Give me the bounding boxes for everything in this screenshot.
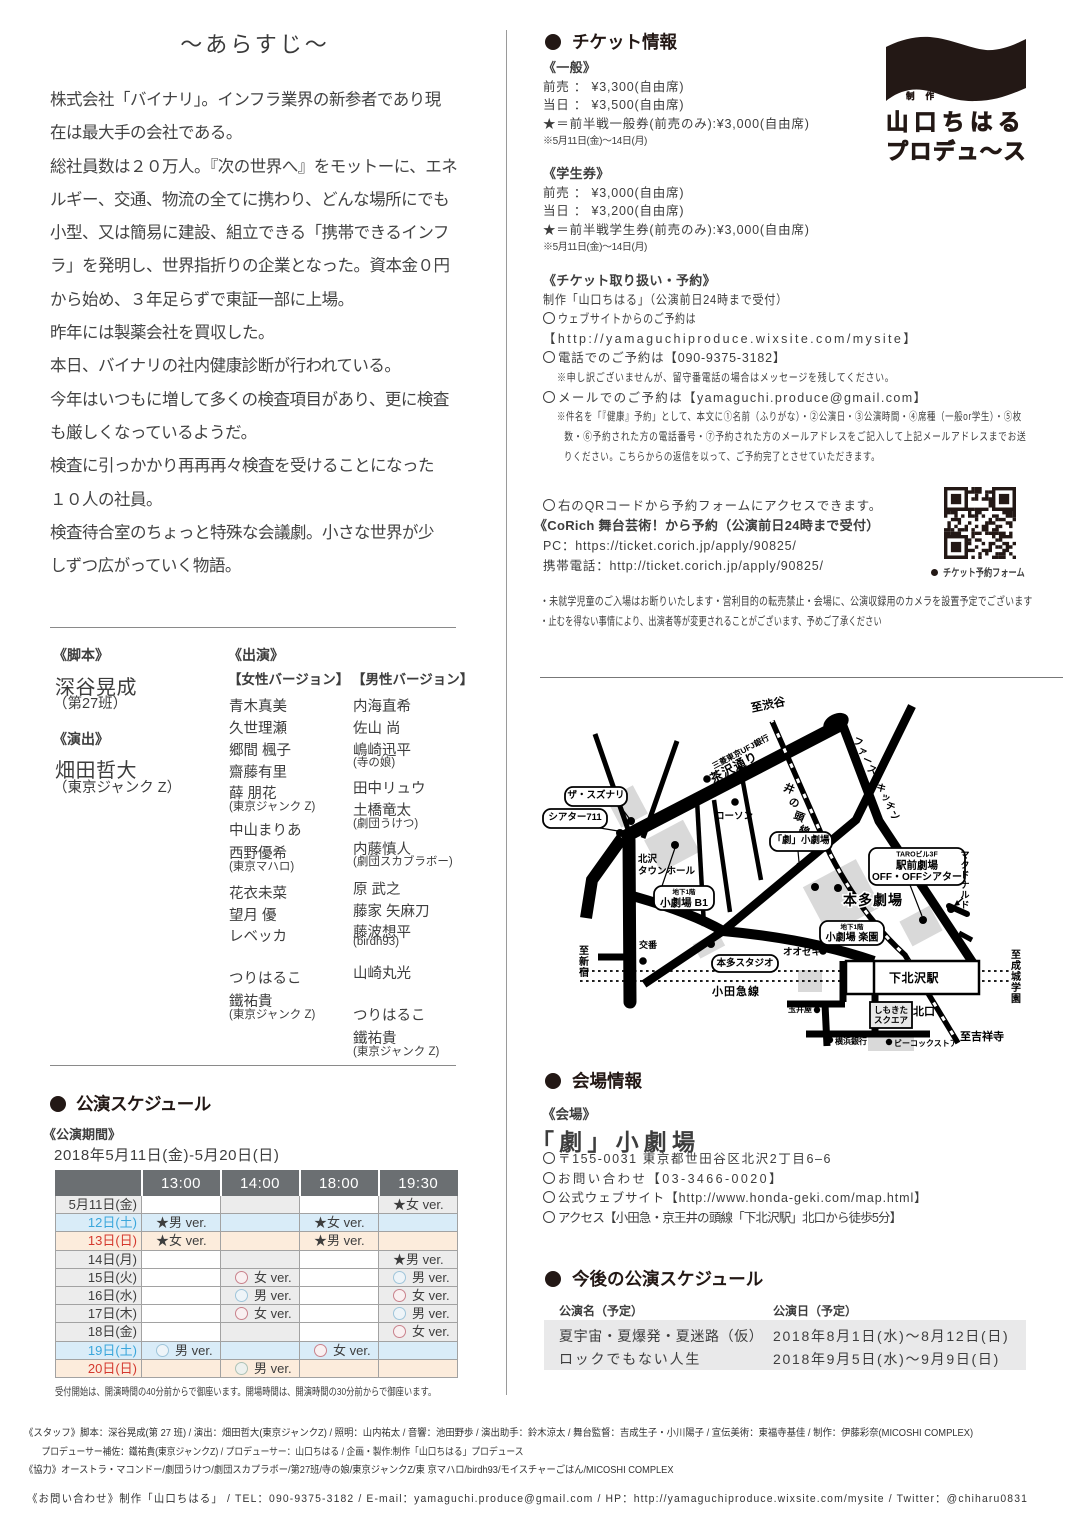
svg-text:宿: 宿 [579, 966, 589, 979]
svg-text:横浜銀行: 横浜銀行 [835, 1036, 867, 1046]
svg-text:至: 至 [1011, 949, 1021, 961]
svg-text:しもきた: しもきた [874, 1005, 908, 1015]
svg-text:の: の [787, 796, 801, 811]
svg-text:新: 新 [579, 955, 589, 968]
svg-text:マ: マ [960, 850, 969, 860]
svg-text:スクエア: スクエア [874, 1015, 909, 1025]
svg-text:小劇場 楽園: 小劇場 楽園 [825, 931, 879, 944]
svg-text:「劇」小劇場: 「劇」小劇場 [772, 834, 830, 846]
svg-text:至吉祥寺: 至吉祥寺 [960, 1029, 1004, 1043]
svg-text:下北沢駅: 下北沢駅 [889, 970, 940, 985]
svg-text:小劇場 B1: 小劇場 B1 [659, 896, 708, 909]
svg-text:園: 園 [1011, 993, 1021, 1005]
svg-text:ビーコックストア: ビーコックストア [894, 1038, 958, 1048]
svg-text:ク: ク [960, 860, 969, 870]
svg-text:ド: ド [960, 900, 969, 910]
svg-text:玉井屋: 玉井屋 [788, 1004, 812, 1014]
svg-text:成: 成 [1011, 959, 1021, 972]
svg-text:TAROビル3F: TAROビル3F [896, 850, 938, 859]
svg-text:駅前劇場: 駅前劇場 [896, 859, 938, 872]
svg-text:至: 至 [579, 945, 589, 957]
svg-text:小田急線: 小田急線 [711, 984, 760, 998]
svg-text:地下1階: 地下1階 [672, 887, 696, 896]
svg-text:本多スタジオ: 本多スタジオ [716, 957, 773, 969]
svg-text:OFF・OFFシアター: OFF・OFFシアター [872, 871, 962, 883]
svg-text:至渋谷: 至渋谷 [750, 694, 787, 715]
svg-text:交番: 交番 [639, 939, 658, 950]
svg-text:ナ: ナ [960, 880, 969, 890]
svg-text:ザ・スズナリ: ザ・スズナリ [567, 789, 624, 801]
svg-text:城: 城 [1011, 970, 1021, 983]
svg-text:本多劇場: 本多劇場 [843, 892, 903, 908]
svg-text:井: 井 [782, 781, 797, 797]
svg-text:オオゼキ: オオゼキ [783, 946, 821, 958]
svg-text:北沢: 北沢 [638, 853, 658, 865]
svg-text:シアター711: シアター711 [548, 811, 602, 823]
svg-text:地下1階: 地下1階 [840, 922, 864, 931]
svg-text:ローソン: ローソン [715, 811, 753, 822]
svg-text:ド: ド [960, 870, 969, 880]
svg-text:北口: 北口 [913, 1004, 935, 1018]
svg-text:学: 学 [1011, 981, 1021, 994]
svg-text:頭: 頭 [792, 810, 807, 825]
